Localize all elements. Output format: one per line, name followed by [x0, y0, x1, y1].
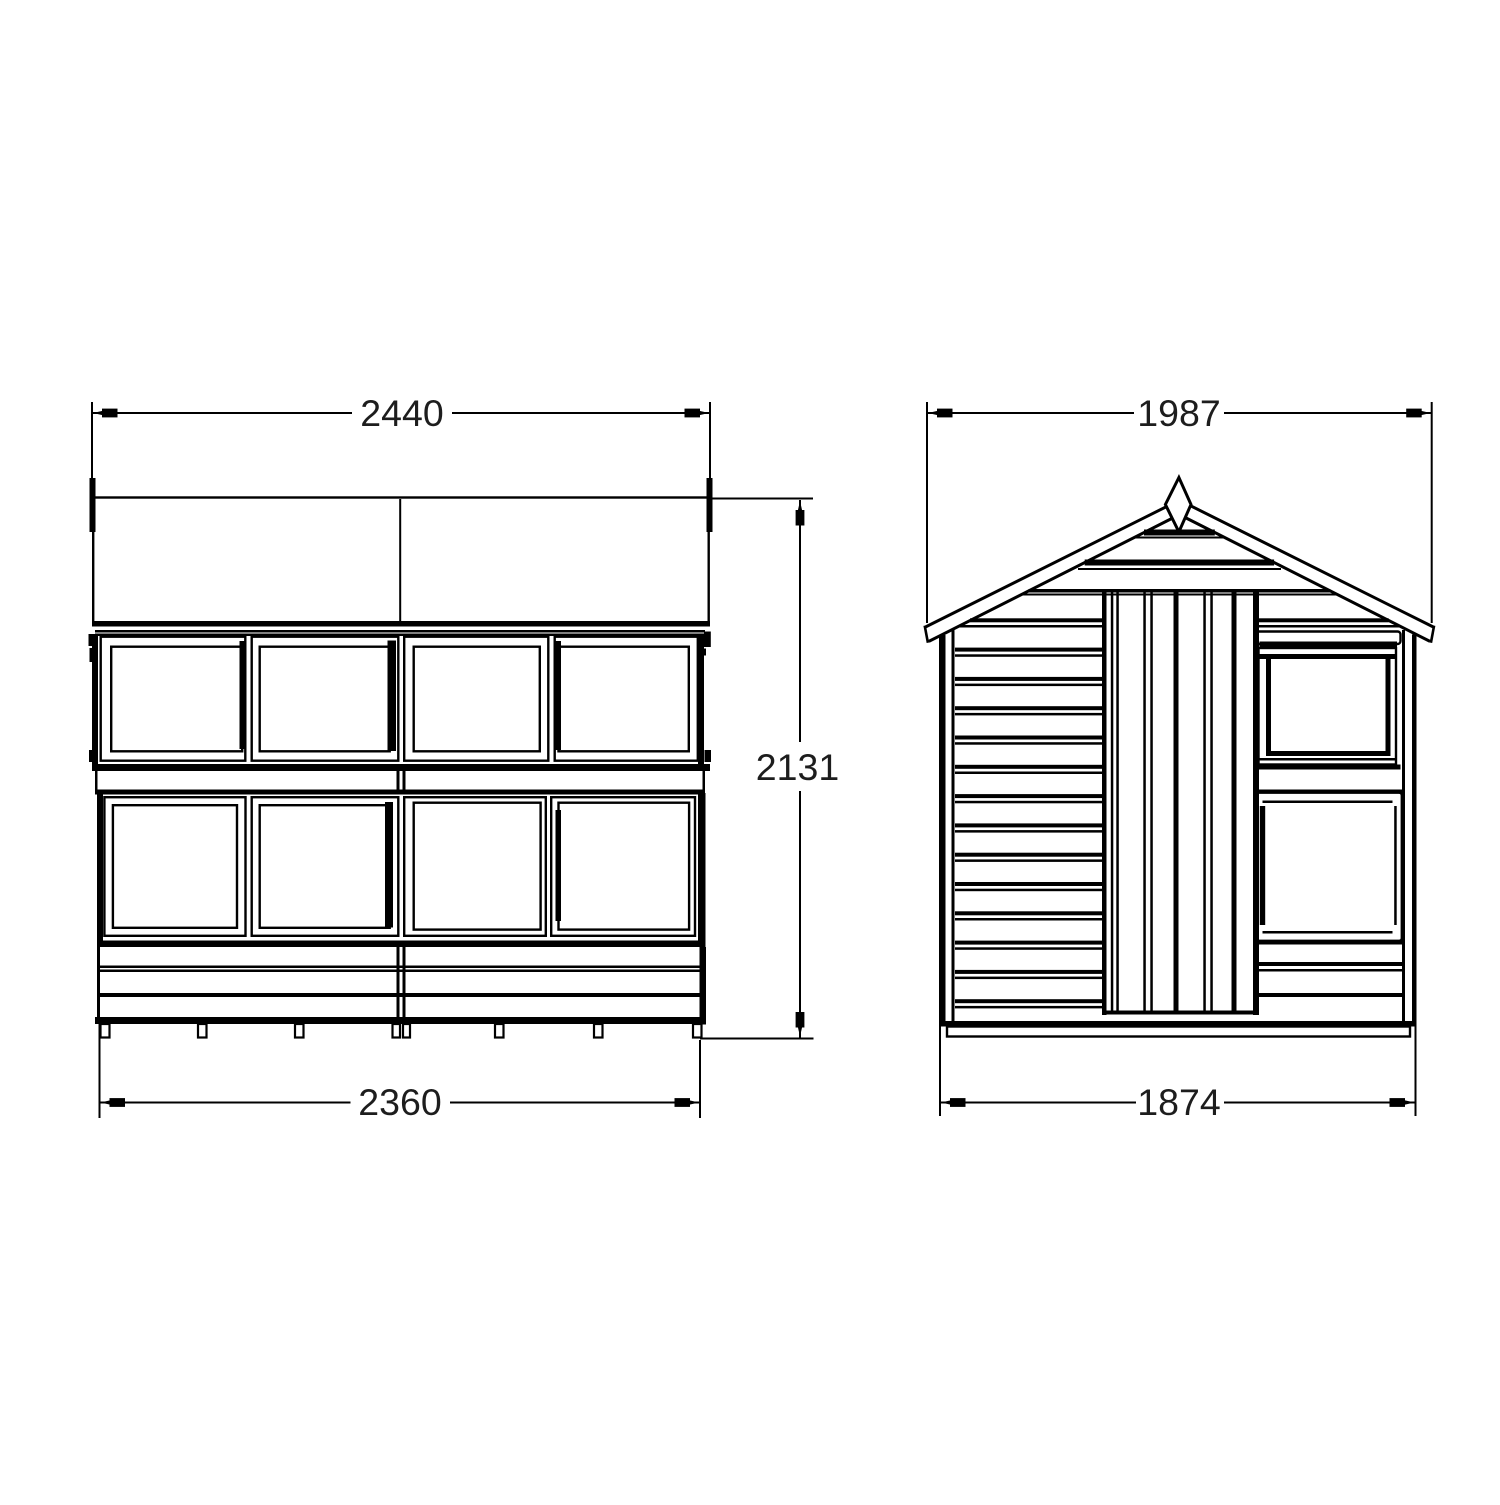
svg-text:2360: 2360	[358, 1081, 441, 1123]
svg-text:2131: 2131	[756, 746, 839, 788]
svg-text:2440: 2440	[360, 392, 443, 434]
svg-text:1987: 1987	[1137, 392, 1220, 434]
svg-text:1874: 1874	[1137, 1081, 1220, 1123]
